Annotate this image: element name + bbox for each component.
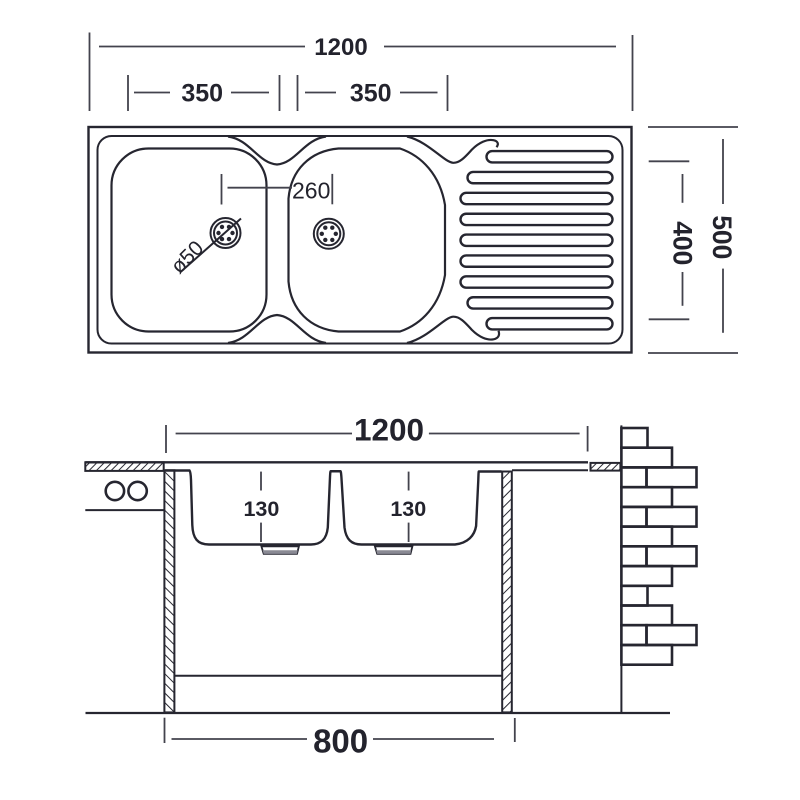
svg-text:1200: 1200 [354,412,424,448]
svg-text:500: 500 [707,215,737,259]
svg-text:400: 400 [668,221,698,265]
svg-text:350: 350 [350,80,392,108]
svg-text:350: 350 [181,80,223,108]
svg-text:1200: 1200 [314,34,367,61]
svg-text:260: 260 [292,178,330,204]
svg-text:130: 130 [390,497,426,521]
svg-text:800: 800 [313,723,368,760]
svg-text:130: 130 [243,497,279,521]
